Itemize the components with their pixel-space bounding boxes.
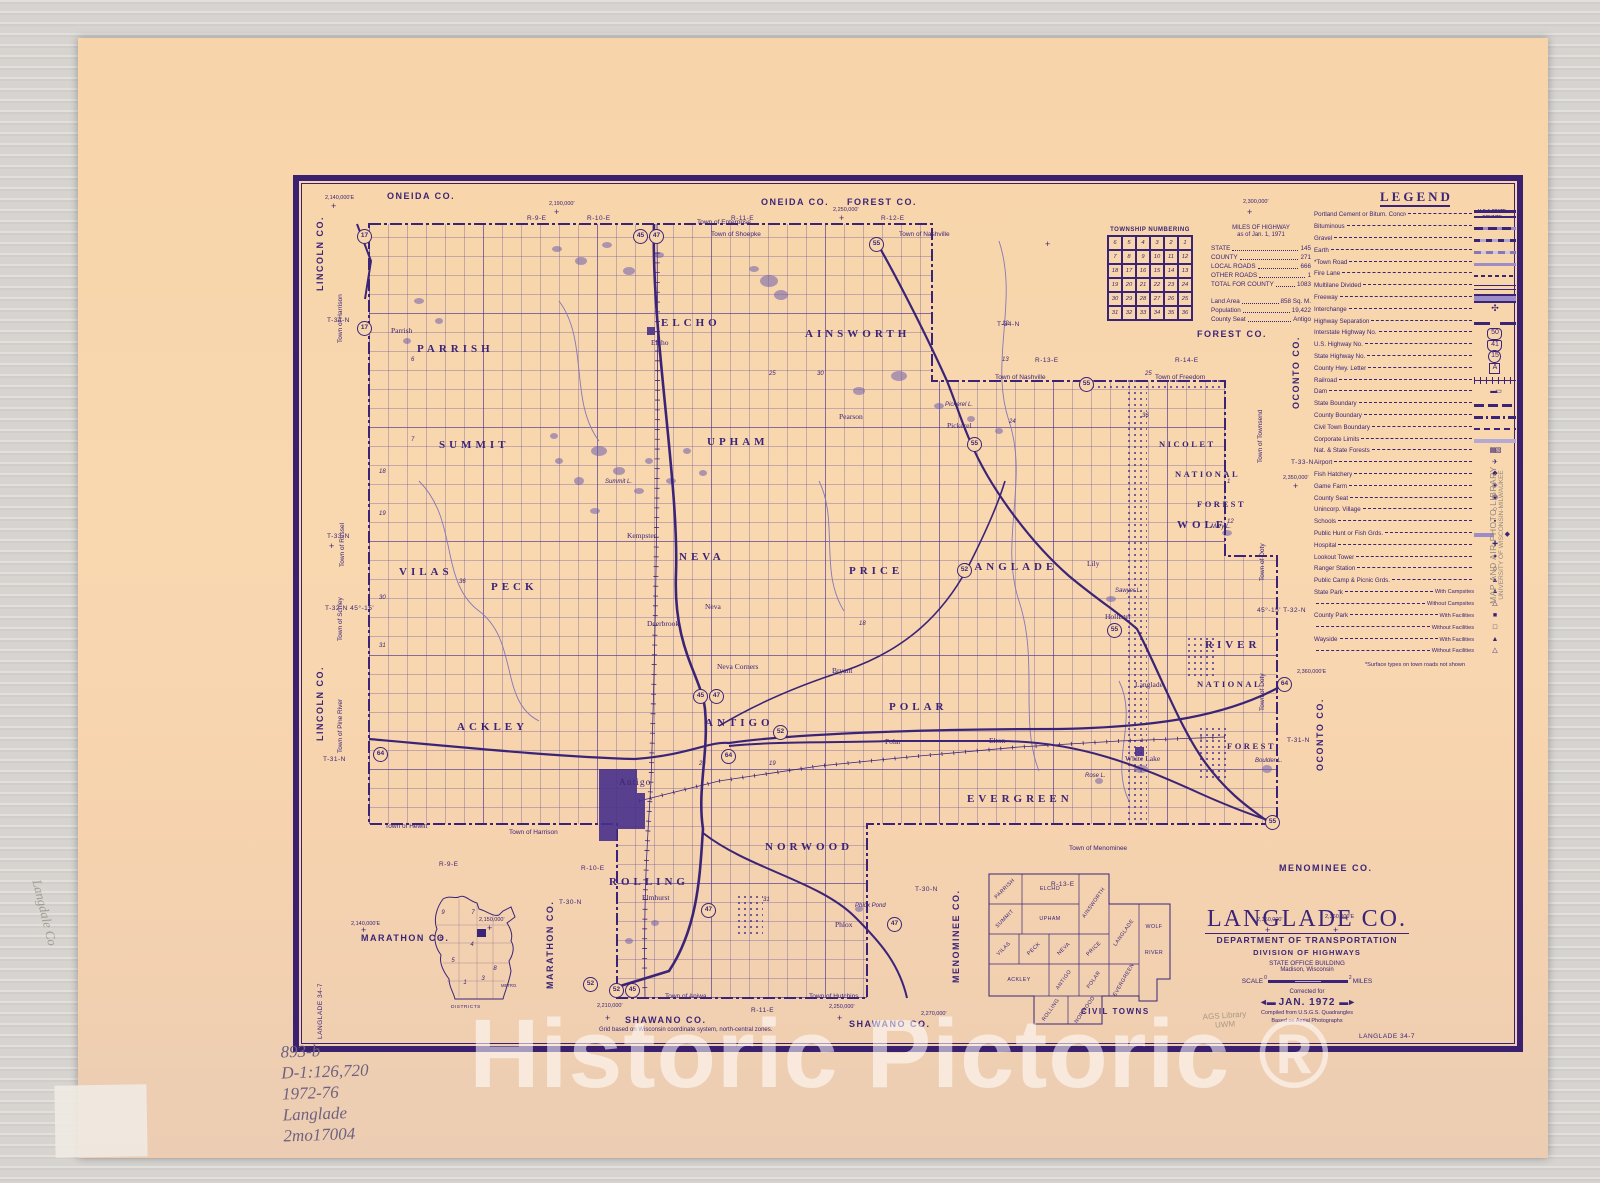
corrected-line: Corrected for — [1197, 989, 1417, 995]
legend-item: County Hwy. Letter A — [1314, 362, 1516, 374]
legend-item: County Seat ◉ — [1314, 492, 1516, 504]
map-label: 47 — [649, 229, 664, 244]
map-label: Parrish — [391, 326, 412, 335]
legend-item-label: U.S. Highway No. — [1314, 341, 1363, 348]
elcho-village — [647, 327, 655, 335]
map-label: + — [1293, 481, 1298, 491]
map-label: 64 — [721, 749, 736, 764]
district-number: 3 — [481, 976, 484, 982]
stat-value: Antigo — [1293, 316, 1311, 323]
map-label: 18 — [859, 621, 866, 627]
legend-symbol — [1474, 322, 1516, 325]
civil-town-name: ELCHO — [1040, 886, 1060, 892]
legend-leader — [1368, 367, 1472, 368]
legend-item: Bituminous — [1314, 221, 1516, 233]
map-label: Antigo — [619, 778, 651, 788]
map-label: 52 — [583, 977, 598, 992]
map-label: Town of Shoepke — [711, 231, 761, 238]
map-label: Town of Pine River — [337, 699, 344, 753]
map-label: + — [1247, 207, 1252, 217]
map-label: Neva Corners — [717, 662, 758, 671]
map-label: 2,140,000'E — [325, 195, 354, 201]
legend-item: Railroad — [1314, 374, 1516, 386]
map-label: Pickerel L. — [945, 402, 973, 408]
legend-item-sublabel: With Campsites — [1435, 589, 1474, 595]
legend-symbol — [1474, 416, 1516, 419]
map-label: Town of Menominee — [1069, 845, 1127, 852]
township-numbering-cell: 36 — [1178, 306, 1192, 320]
map-label: SUMMIT — [439, 439, 509, 451]
map-label: LINCOLN CO. — [315, 666, 325, 741]
stat-leader — [1242, 303, 1279, 304]
legend-symbol — [1474, 294, 1516, 303]
map-label: Town of Hewitt — [385, 823, 427, 830]
map-label: Town of Doty — [1259, 543, 1266, 581]
map-label: MARATHON CO. — [545, 901, 555, 989]
map-label: 55 — [967, 437, 982, 452]
township-numbering-cell: 4 — [1136, 236, 1150, 250]
legend-item: Freeway — [1314, 292, 1516, 304]
township-numbering-cell: 31 — [1108, 306, 1122, 320]
legend-item: Without Facilities △ — [1314, 645, 1516, 657]
map-label: 55 — [1079, 377, 1094, 392]
highway-miles-row: STATE 145 — [1211, 243, 1311, 252]
legend-rows: Portland Cement or Bitum. Concrete Bitum… — [1314, 209, 1516, 657]
legend-item: Earth — [1314, 244, 1516, 256]
highway-miles-title2: as of Jan. 1, 1971 — [1237, 232, 1285, 238]
miles-row-label: COUNTY — [1211, 254, 1238, 261]
legend-item: Gravel — [1314, 233, 1516, 245]
legend-leader — [1340, 296, 1472, 297]
legend-item-label: County Park — [1314, 612, 1348, 619]
map-label: POLAR — [889, 701, 948, 713]
map-label: ONEIDA CO. — [761, 197, 829, 207]
legend-leader — [1392, 579, 1472, 580]
legend-symbol — [1474, 263, 1516, 266]
hand-line: 2mo17004 — [283, 1122, 371, 1146]
township-numbering-cell: 34 — [1150, 306, 1164, 320]
legend-item-sublabel: With Facilities — [1440, 637, 1475, 643]
highway-miles-title: MILES OF HIGHWAY as of Jan. 1, 1971 — [1211, 225, 1311, 239]
map-label: FOREST — [1227, 741, 1276, 751]
civil-town-name: UPHAM — [1039, 916, 1060, 922]
map-label: 64 — [1277, 677, 1292, 692]
map-label: 45 — [633, 229, 648, 244]
stat-value: 19,422 — [1292, 307, 1311, 314]
map-label: NEVA — [679, 551, 725, 563]
stat-label: Land Area — [1211, 298, 1240, 305]
map-label: Neva — [705, 602, 721, 611]
legend-item: Lookout Tower ● — [1314, 551, 1516, 563]
legend-title: LEGEND — [1380, 189, 1450, 207]
township-numbering-cell: 10 — [1150, 250, 1164, 264]
hwy-52-north — [719, 481, 1005, 726]
map-label: T-32-N 45°-15' — [325, 605, 374, 612]
map-label: Sawyer L. — [1115, 588, 1142, 594]
legend-symbol — [1474, 387, 1516, 397]
legend-item-label: Lookout Tower — [1314, 554, 1354, 561]
map-label: 2,360,000'E — [1297, 669, 1326, 675]
civil-town-name: WOLF — [1146, 924, 1163, 930]
township-numbering-cell: 9 — [1136, 250, 1150, 264]
map-label: FOREST CO. — [847, 197, 917, 207]
map-label: 52 — [957, 563, 972, 578]
legend-item-label: Fire Lane — [1314, 270, 1340, 277]
legend-item: *Town Road — [1314, 256, 1516, 268]
legend-symbol — [1474, 251, 1516, 254]
highway-miles-rows: STATE 145 COUNTY 271 LOCAL ROADS 666 OTH… — [1211, 243, 1311, 288]
highway-miles-row: TOTAL FOR COUNTY 1083 — [1211, 279, 1311, 288]
township-numbering-cell: 32 — [1122, 306, 1136, 320]
map-label: VILAS — [399, 566, 453, 578]
township-numbering-cell: 15 — [1150, 264, 1164, 278]
map-label: R-10-E — [587, 215, 611, 222]
legend-leader — [1372, 426, 1472, 427]
map-label: NATIONAL — [1197, 679, 1262, 689]
legend-item: Unincorp. Village ○ — [1314, 504, 1516, 516]
district-number: 8 — [493, 966, 496, 972]
stat-value: 858 Sq. M. — [1281, 298, 1311, 305]
map-label: + — [331, 201, 336, 211]
legend-symbol — [1474, 377, 1516, 384]
township-numbering-cell: 24 — [1178, 278, 1192, 292]
legend-item-label: Gravel — [1314, 235, 1332, 242]
map-label: FOREST — [1197, 499, 1246, 509]
pencil-margin-note: Langdale Co — [28, 878, 60, 947]
map-label: 13 — [1002, 357, 1009, 363]
map-label: Elcho — [651, 338, 669, 347]
map-label: Town of Townsend — [1257, 410, 1264, 463]
highway-miles-row: OTHER ROADS 1 — [1211, 270, 1311, 279]
legend-item: State Park With Campsites ▲ — [1314, 587, 1516, 599]
legend-item-label: Railroad — [1314, 377, 1337, 384]
highway-miles-block: MILES OF HIGHWAY as of Jan. 1, 1971 STAT… — [1211, 225, 1311, 323]
map-label: Rose L. — [1085, 773, 1106, 779]
township-numbering-cell: 22 — [1150, 278, 1164, 292]
map-label: Bryant — [832, 666, 852, 675]
township-numbering-cell: 23 — [1164, 278, 1178, 292]
legend-item-label: *Town Road — [1314, 259, 1347, 266]
legend-item-label: Schools — [1314, 518, 1336, 525]
map-label: 52 — [773, 725, 788, 740]
district-number: 7 — [471, 910, 474, 916]
legend-item: Without Campsites △ — [1314, 598, 1516, 610]
legend-leader — [1342, 272, 1472, 273]
building-line: STATE OFFICE BUILDING — [1197, 960, 1417, 967]
map-label: PARRISH — [417, 343, 494, 355]
legend-item-label: Airport — [1314, 459, 1332, 466]
map-label: AINSWORTH — [805, 328, 910, 340]
legend-leader — [1329, 390, 1472, 391]
legend-symbol: 15 — [1474, 351, 1516, 361]
miles-leader — [1259, 277, 1305, 278]
map-label: ANTIGO — [705, 717, 774, 729]
township-numbering-cell: 11 — [1164, 250, 1178, 264]
township-numbering-cell: 14 — [1164, 264, 1178, 278]
map-label: LANGLADE — [963, 561, 1057, 573]
map-label: 45 — [625, 983, 640, 998]
rivers — [419, 241, 1129, 801]
map-label: RIVER — [1205, 639, 1260, 651]
city-line: Madison, Wisconsin — [1197, 967, 1417, 973]
legend-item: Multilane Divided — [1314, 280, 1516, 292]
legend-item: State Boundary — [1314, 398, 1516, 410]
legend-symbol: 50 — [1474, 328, 1516, 338]
legend-item: Airport ✈ — [1314, 457, 1516, 469]
legend-leader — [1379, 331, 1472, 332]
map-label: UPHAM — [707, 436, 769, 448]
forest-stipple-s — [737, 893, 763, 938]
legend-item-label: State Boundary — [1314, 400, 1357, 407]
miles-leader — [1276, 286, 1295, 287]
map-label: 55 — [1107, 623, 1122, 638]
miles-row-label: TOTAL FOR COUNTY — [1211, 281, 1274, 288]
legend-leader — [1363, 508, 1472, 509]
legend-item-label: Earth — [1314, 247, 1329, 254]
map-label: PECK — [491, 581, 538, 593]
township-numbering-cell: 18 — [1108, 264, 1122, 278]
district-number: 9 — [441, 910, 444, 916]
map-label: Town of Russel — [339, 523, 346, 567]
scale-label: SCALE — [1242, 978, 1263, 985]
miles-leader — [1240, 259, 1299, 260]
township-numbering-cell: 8 — [1122, 250, 1136, 264]
map-label: Lily — [1087, 559, 1100, 568]
map-label: 19 — [769, 761, 776, 767]
department-title: DEPARTMENT OF TRANSPORTATION — [1205, 933, 1409, 945]
library-stamp: MAP AND AIR PHOTO LIBRARY UNIVERSITY OF … — [1488, 430, 1505, 640]
legend-item-label: Public Camp & Picnic Grds. — [1314, 577, 1390, 584]
legend-leader — [1371, 320, 1472, 321]
legend-item: County Park With Facilities ■ — [1314, 610, 1516, 622]
legend-item: Fish Hatchery ◆ — [1314, 469, 1516, 481]
township-numbering-cell: 12 — [1178, 250, 1192, 264]
map-sheet: ONEIDA CO.ONEIDA CO.FOREST CO.FOREST CO.… — [78, 38, 1548, 1158]
legend-item-label: State Highway No. — [1314, 353, 1365, 360]
map-label: 36 — [459, 579, 466, 585]
map-label: 47 — [709, 689, 724, 704]
legend-leader — [1364, 414, 1472, 415]
township-numbering: TOWNSHIP NUMBERING 654321789101112181716… — [1097, 227, 1203, 321]
legend-symbol: 41 — [1474, 340, 1516, 350]
miles-row-label: STATE — [1211, 245, 1230, 252]
legend-leader — [1354, 473, 1472, 474]
map-label: + — [1045, 239, 1050, 249]
legend-item-label: Unincorp. Village — [1314, 506, 1361, 513]
legend-item-sublabel: Without Facilities — [1432, 625, 1474, 631]
map-label: OCONTO CO. — [1315, 698, 1325, 771]
legend-item: State Highway No. 15 — [1314, 351, 1516, 363]
map-label: 45 — [693, 689, 708, 704]
map-label: 31 — [763, 897, 770, 903]
legend-item-label: Hospital — [1314, 542, 1336, 549]
township-numbering-cell: 20 — [1122, 278, 1136, 292]
legend-item-label: Wayside — [1314, 636, 1338, 643]
legend-symbol — [1474, 275, 1516, 277]
legend-item-label: Game Farm — [1314, 483, 1347, 490]
map-label: NATIONAL — [1175, 469, 1240, 479]
map-label: ELCHO — [661, 317, 721, 329]
map-label: 25 — [769, 371, 776, 377]
library-stamp-line2: UNIVERSITY OF WISCONSIN-MILWAUKEE — [1498, 430, 1505, 640]
map-label: 18 — [379, 469, 386, 475]
map-label: R-13-E — [1035, 357, 1059, 364]
highway-miles-title1: MILES OF HIGHWAY — [1232, 225, 1290, 231]
legend-leader — [1365, 343, 1472, 344]
map-label: 6 — [411, 357, 414, 363]
map-label: 24 — [1009, 419, 1016, 425]
township-numbering-cell: 21 — [1136, 278, 1150, 292]
map-label: 64 — [373, 747, 388, 762]
legend-leader — [1316, 626, 1430, 627]
legend-leader — [1338, 520, 1472, 521]
miles-leader — [1258, 268, 1299, 269]
legend-leader — [1316, 603, 1425, 604]
township-numbering-cell: 16 — [1136, 264, 1150, 278]
us-47-branch — [703, 833, 907, 998]
legend-item-label: Nat. & State Forests — [1314, 447, 1370, 454]
legend-item-label: Fish Hatchery — [1314, 471, 1352, 478]
map-label: Kempster — [627, 531, 656, 540]
scale-bar: SCALE 0 2 MILES — [1197, 978, 1417, 985]
district-number: 5 — [451, 958, 454, 964]
map-label: Elmhurst — [642, 893, 670, 902]
township-numbering-cell: 28 — [1136, 292, 1150, 306]
map-label: Phlox — [835, 920, 853, 929]
township-numbering-cell: 13 — [1178, 264, 1192, 278]
miles-row-value: 1 — [1307, 272, 1311, 279]
legend-item: Portland Cement or Bitum. Concrete — [1314, 209, 1516, 221]
map-label: R-12-E — [881, 215, 905, 222]
legend-symbol — [1474, 404, 1516, 407]
stat-label: Population — [1211, 307, 1241, 314]
legend-item: Nat. & State Forests — [1314, 445, 1516, 457]
map-label: 55 — [1265, 815, 1280, 830]
legend-item: Dam — [1314, 386, 1516, 398]
legend-item-label: County Boundary — [1314, 412, 1362, 419]
township-numbering-cell: 3 — [1150, 236, 1164, 250]
township-numbering-title: TOWNSHIP NUMBERING — [1097, 227, 1203, 233]
map-label: 24 — [699, 761, 706, 767]
map-label: EVERGREEN — [967, 793, 1073, 805]
township-numbering-cell: 35 — [1164, 306, 1178, 320]
legend-symbol — [1474, 239, 1516, 242]
miles-row-value: 1083 — [1297, 281, 1311, 288]
legend-item: Interchange — [1314, 303, 1516, 315]
district-number: 1 — [463, 980, 466, 986]
map-label: 2,250,000' — [833, 207, 859, 213]
legend-leader — [1357, 567, 1472, 568]
map-label: R-9-E — [439, 861, 458, 868]
legend-item-sublabel: Without Campsites — [1427, 601, 1474, 607]
map-label: T-30-N — [915, 886, 938, 893]
map-label: 19 — [379, 511, 386, 517]
legend-symbol: A — [1474, 363, 1516, 373]
legend-item-sublabel: With Facilities — [1440, 613, 1475, 619]
township-numbering-cell: 6 — [1108, 236, 1122, 250]
township-numbering-cell: 5 — [1122, 236, 1136, 250]
map-label: Phlox Pond — [855, 903, 886, 909]
map-label: 45°-15' T-32-N — [1257, 607, 1306, 614]
map-label: T-31-N — [1287, 737, 1310, 744]
map-label: PRICE — [849, 565, 903, 577]
legend-item: Corporate Limits — [1314, 433, 1516, 445]
map-label: OCONTO CO. — [1291, 336, 1301, 409]
legend-leader — [1347, 225, 1472, 226]
legend-symbol — [1474, 304, 1516, 314]
legend-item: Schools ▪ — [1314, 516, 1516, 528]
map-label: Langlade — [1135, 680, 1163, 689]
stat-label: County Seat — [1211, 316, 1246, 323]
legend-symbol — [1474, 210, 1516, 220]
map-label: 2,190,000' — [549, 201, 575, 207]
township-numbering-cell: 26 — [1164, 292, 1178, 306]
legend-item-label: Dam — [1314, 388, 1327, 395]
legend-leader — [1334, 237, 1472, 238]
miles-row-label: OTHER ROADS — [1211, 272, 1257, 279]
map-label: + — [554, 207, 559, 217]
township-numbering-cell: 7 — [1108, 250, 1122, 264]
scale-tick: 2 — [1349, 975, 1352, 981]
map-label: Pickerel — [947, 421, 972, 430]
district-number: 4 — [470, 942, 473, 948]
legend-item-label: County Hwy. Letter — [1314, 365, 1366, 372]
county-stat-row: Population 19,422 — [1211, 305, 1311, 314]
legend-item: Wayside With Facilities ▲ — [1314, 634, 1516, 646]
legend-leader — [1367, 355, 1472, 356]
legend-item-label: Freeway — [1314, 294, 1338, 301]
highway-miles-row: LOCAL ROADS 666 — [1211, 261, 1311, 270]
legend-item: Hospital ✚ — [1314, 539, 1516, 551]
map-label: T-31-N — [323, 756, 346, 763]
civil-town-name: ACKLEY — [1007, 977, 1030, 983]
scale-units: MILES — [1353, 978, 1373, 985]
legend-item: Without Facilities □ — [1314, 622, 1516, 634]
map-label: Town of Harrison — [509, 829, 558, 836]
legend-item: County Boundary — [1314, 410, 1516, 422]
legend-item: Ranger Station ⌂ — [1314, 563, 1516, 575]
hand-line: D-1:126,720 — [281, 1059, 369, 1083]
map-label: 31 — [379, 643, 386, 649]
highway-miles-row: COUNTY 271 — [1211, 252, 1311, 261]
miles-row-value: 666 — [1300, 263, 1311, 270]
legend-leader — [1350, 497, 1472, 498]
map-label: 1 — [1227, 479, 1230, 485]
legend-item-label: Highway Separation — [1314, 318, 1369, 325]
map-label: 30 — [817, 371, 824, 377]
legend-item-label: Interchange — [1314, 306, 1347, 313]
legend-leader — [1349, 308, 1472, 309]
legend-item-label: State Park — [1314, 589, 1343, 596]
legend-leader — [1338, 544, 1472, 545]
civil-town-name: RIVER — [1145, 950, 1163, 956]
map-label: Deerbrook — [647, 619, 679, 628]
scale-bar-segments — [1268, 980, 1348, 983]
library-stamp-line1: MAP AND AIR PHOTO LIBRARY — [1488, 430, 1498, 640]
township-numbering-cell: 17 — [1122, 264, 1136, 278]
map-label: Boulder L. — [1255, 758, 1282, 764]
district-number: 6 — [439, 936, 442, 942]
legend-leader — [1408, 213, 1472, 214]
legend-leader — [1361, 438, 1472, 439]
map-label: ONEIDA CO. — [387, 191, 455, 201]
legend-item-label: County Seat — [1314, 495, 1348, 502]
langlade-county-highlight — [477, 929, 486, 937]
legend-leader — [1331, 249, 1472, 250]
map-label: 12 — [1227, 519, 1234, 525]
label-sticker — [54, 1084, 147, 1158]
map-label: White Lake — [1125, 754, 1160, 763]
